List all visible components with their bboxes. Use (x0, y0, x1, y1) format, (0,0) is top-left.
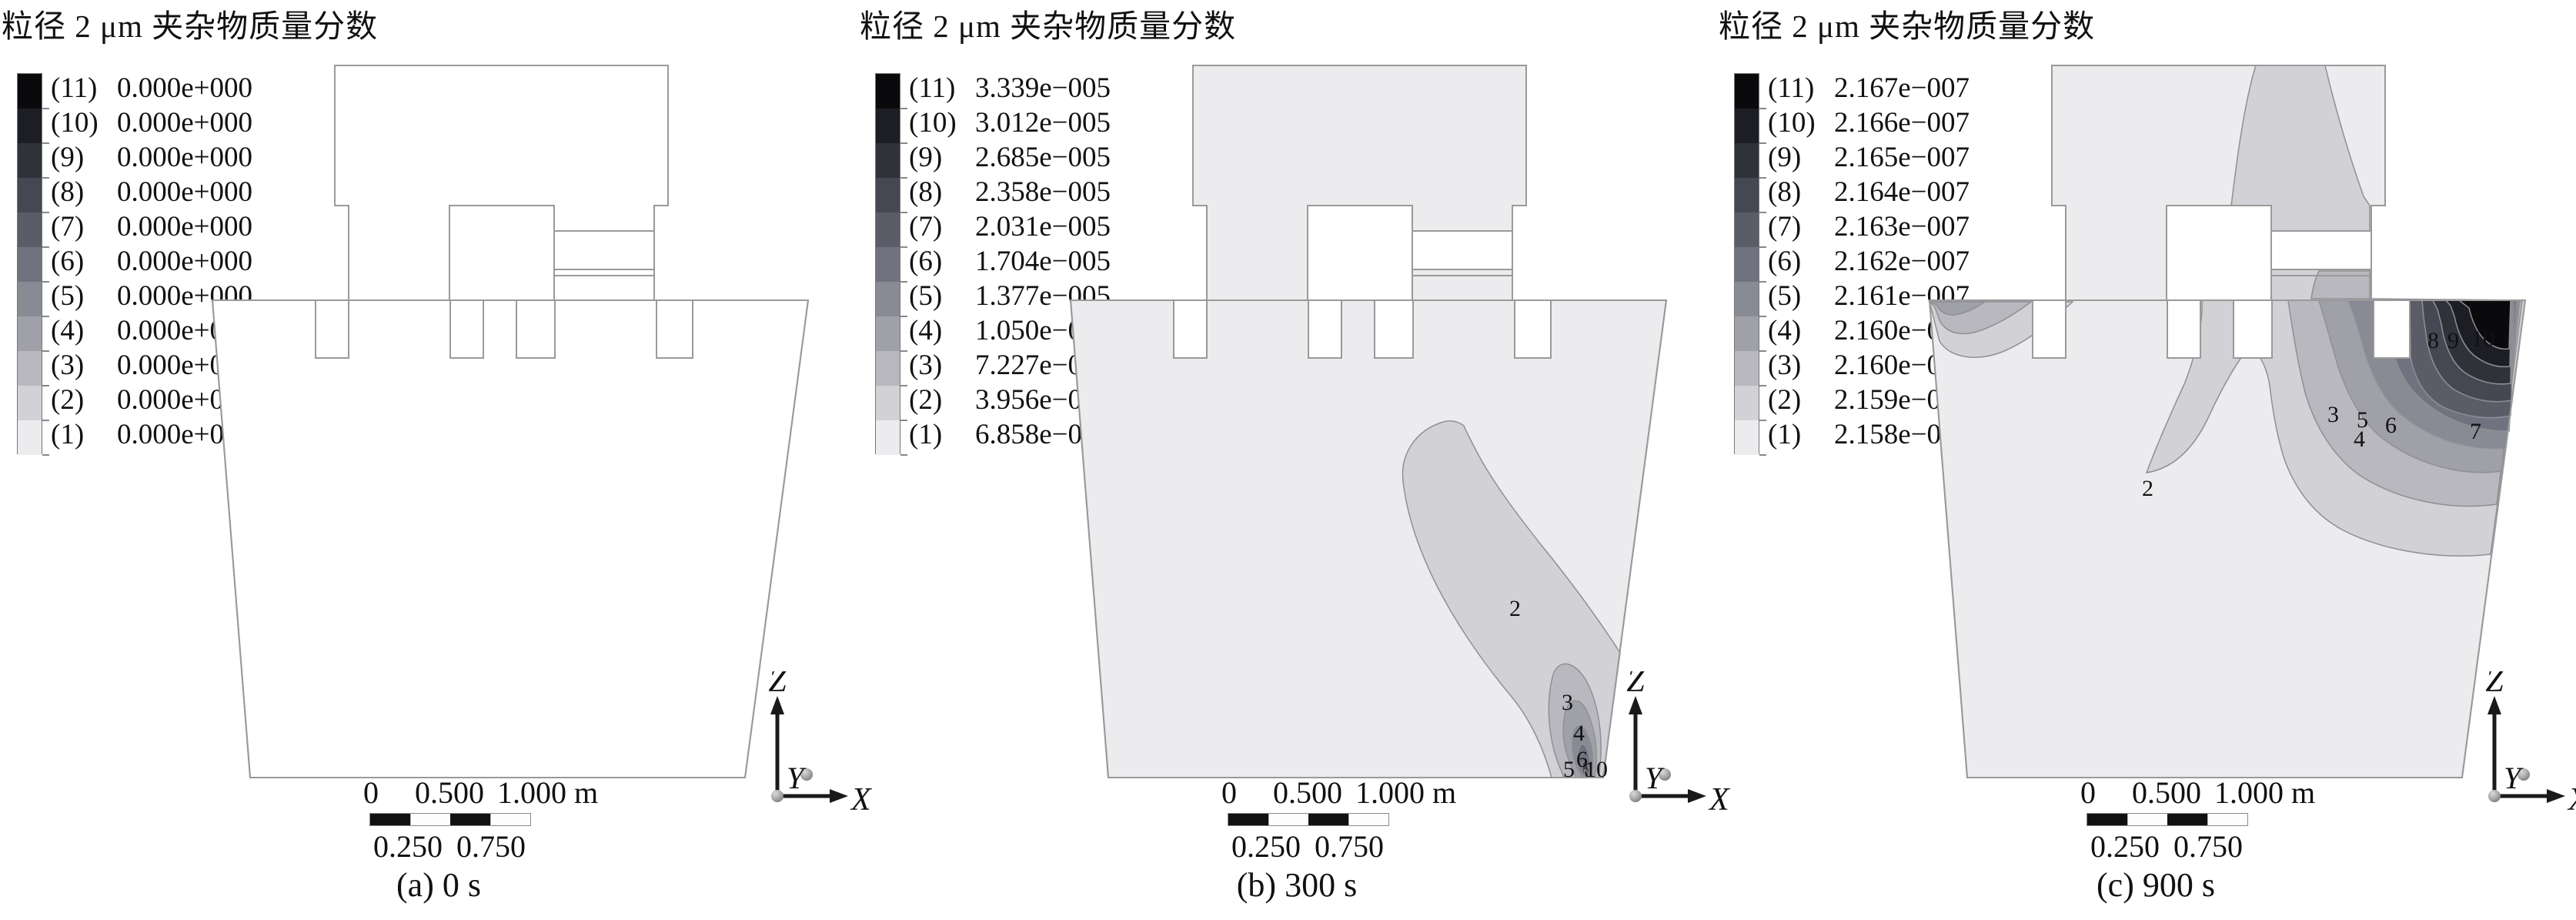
contour-level-label: 8 (2427, 328, 2439, 353)
y-axis-label: Y (787, 761, 807, 795)
axis-triad-c: Z Y X (2465, 671, 2576, 818)
scale-label-1000m: 1.000 m (1355, 774, 1502, 811)
scale-label-0750: 0.750 (446, 828, 536, 865)
contour-level-label: 2 (2142, 476, 2153, 501)
scale-label-0: 0 (2071, 774, 2105, 811)
figure-canvas: 粒径 2 μm 夹杂物质量分数 (11)0.000e+000(10)0.000e… (0, 0, 2576, 920)
contour-level-label: 9 (2447, 328, 2459, 353)
scale-label-0750: 0.750 (1305, 828, 1394, 865)
panel-a: 粒径 2 μm 夹杂物质量分数 (11)0.000e+000(10)0.000e… (0, 0, 859, 920)
scale-label-0250: 0.250 (363, 828, 453, 865)
y-axis-label: Y (1645, 761, 1665, 795)
axis-arrows-icon (770, 696, 848, 803)
z-axis-label: Z (768, 671, 787, 699)
scale-label-0500: 0.500 (408, 774, 491, 811)
contour-level-label: 3 (1562, 690, 1573, 715)
scale-bar (1228, 813, 1389, 826)
panel-c-caption: (c) 900 s (2022, 865, 2290, 905)
scale-label-1000m: 1.000 m (497, 774, 643, 811)
scale-seg-white (2207, 814, 2248, 825)
scale-seg-white (490, 814, 531, 825)
scale-seg-black (450, 814, 490, 825)
tundish-domain (212, 65, 808, 778)
panel-b-caption: (b) 300 s (1163, 865, 1431, 905)
scale-seg-black (1308, 814, 1348, 825)
axis-arrows-icon (2487, 696, 2565, 803)
scale-seg-white (1348, 814, 1389, 825)
scale-seg-white (410, 814, 451, 825)
scale-seg-white (2127, 814, 2168, 825)
scale-label-0750: 0.750 (2163, 828, 2253, 865)
panel-a-caption: (a) 0 s (305, 865, 573, 905)
contour-level-label: 5 (1563, 757, 1575, 782)
scale-seg-black (1228, 814, 1268, 825)
contour-level-label: 7 (2470, 419, 2481, 444)
scale-label-0: 0 (1212, 774, 1246, 811)
z-axis-label: Z (1626, 671, 1645, 699)
scale-label-1000m: 1.000 m (2214, 774, 2360, 811)
z-axis-label: Z (2485, 671, 2504, 699)
y-axis-label: Y (2504, 761, 2524, 795)
scale-seg-black (2087, 814, 2127, 825)
contour-level-label: 6 (2385, 413, 2397, 438)
contour-level-label: 10 (2471, 326, 2494, 352)
scale-bar (369, 813, 531, 826)
contour-level-label: 2 (1509, 596, 1521, 621)
contour-level-label: 4 (1573, 721, 1585, 746)
scale-label-0: 0 (354, 774, 388, 811)
x-axis-label: X (2567, 782, 2576, 818)
scale-label-0250: 0.250 (1221, 828, 1311, 865)
scale-label-0500: 0.500 (2125, 774, 2208, 811)
scale-bar (2087, 813, 2248, 826)
contour-level-label: 3 (2327, 402, 2339, 427)
scale-seg-black (2167, 814, 2207, 825)
axis-arrows-icon (1629, 696, 1706, 803)
panel-b: 粒径 2 μm 夹杂物质量分数 (11)3.339e−005(10)3.012e… (858, 0, 1717, 920)
scale-label-0500: 0.500 (1266, 774, 1349, 811)
scale-seg-black (370, 814, 410, 825)
contour-level-label: 4 (2354, 427, 2365, 452)
scale-label-0250: 0.250 (2080, 828, 2170, 865)
contour-level-label: 10 (1585, 757, 1608, 782)
panel-c: 粒径 2 μm 夹杂物质量分数 (11)2.167e−007(10)2.166e… (1717, 0, 2576, 920)
scale-seg-white (1268, 814, 1309, 825)
